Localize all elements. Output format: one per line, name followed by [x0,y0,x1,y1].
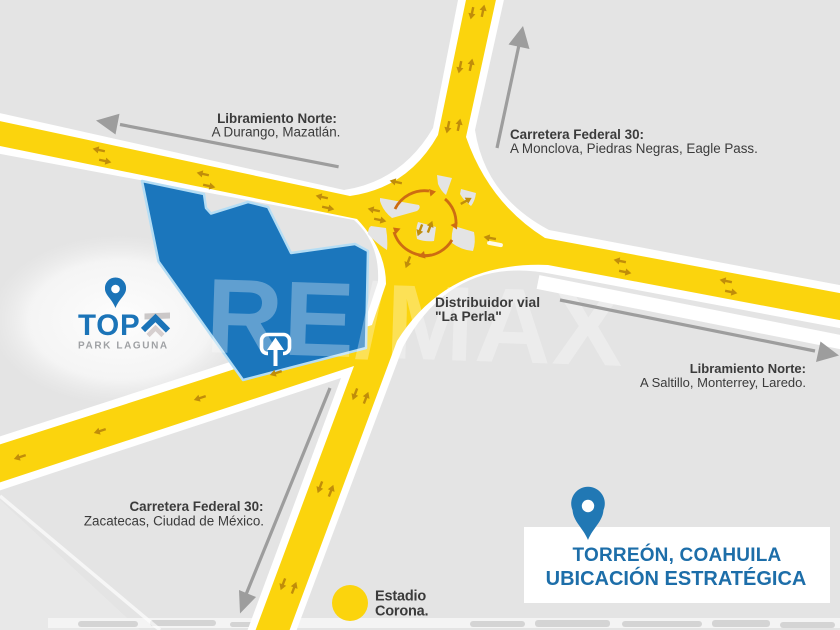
svg-text:"La Perla": "La Perla" [435,309,502,324]
svg-text:Libramiento Norte:: Libramiento Norte: [690,361,806,376]
svg-text:Carretera Federal 30:: Carretera Federal 30: [510,127,644,142]
svg-text:TOP: TOP [78,309,141,342]
svg-text:Estadio: Estadio [375,589,426,605]
svg-text:A Durango, Mazatlán.: A Durango, Mazatlán. [212,125,341,140]
svg-text:PARK LAGUNA: PARK LAGUNA [78,341,169,352]
svg-text:Zacatecas, Ciudad de México.: Zacatecas, Ciudad de México. [84,514,264,529]
svg-text:UBICACIÓN ESTRATÉGICA: UBICACIÓN ESTRATÉGICA [546,566,807,590]
svg-text:A Saltillo, Monterrey, Laredo.: A Saltillo, Monterrey, Laredo. [640,375,806,390]
svg-text:A Monclova, Piedras Negras, Ea: A Monclova, Piedras Negras, Eagle Pass. [510,141,758,156]
svg-text:Distribuidor vial: Distribuidor vial [435,295,540,310]
svg-text:RE/MAX: RE/MAX [204,257,626,389]
svg-text:Corona.: Corona. [375,604,429,620]
svg-text:Carretera Federal 30:: Carretera Federal 30: [130,499,264,514]
svg-text:TORREÓN, COAHUILA: TORREÓN, COAHUILA [573,544,782,566]
